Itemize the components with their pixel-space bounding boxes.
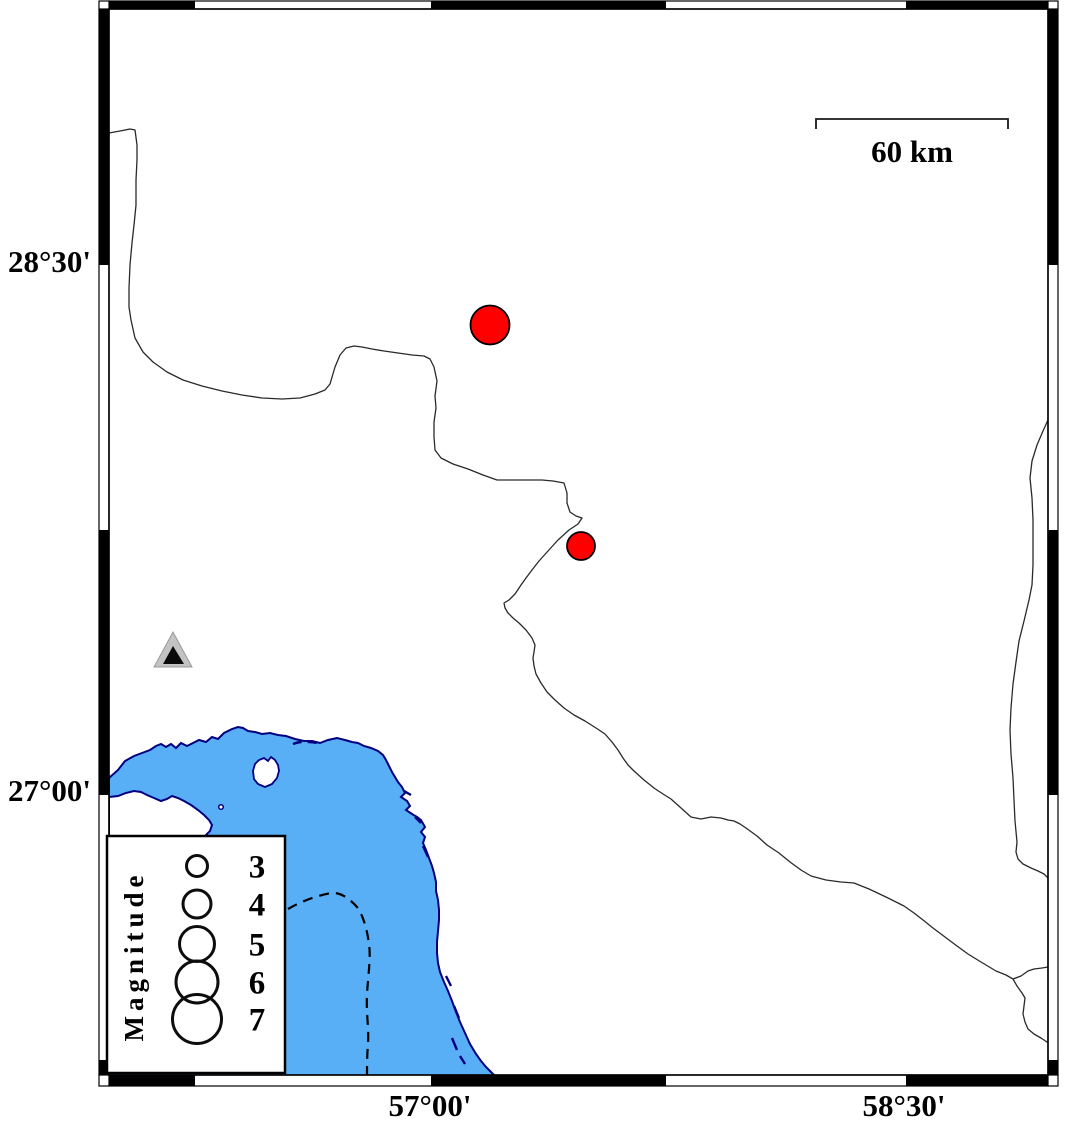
lon-label-58-30: 58°30' xyxy=(862,1088,945,1122)
legend-label-m7: 7 xyxy=(249,1003,266,1039)
lon-label-57-00: 57°00' xyxy=(388,1088,471,1122)
magnitude-legend: Magnitude 34567 xyxy=(107,836,285,1073)
legend-label-m6: 6 xyxy=(249,966,266,1002)
lat-label-27-00: 27°00' xyxy=(8,773,91,808)
legend-label-m4: 4 xyxy=(249,888,266,924)
map-figure: 60 km xyxy=(0,0,1066,1122)
earthquake-marker-1 xyxy=(471,306,510,345)
frame-corner-topleft xyxy=(99,1,109,9)
scale-bar-label: 60 km xyxy=(871,134,953,169)
earthquake-marker-2 xyxy=(567,532,595,560)
map-canvas: 60 km xyxy=(0,0,1066,1122)
legend-title: Magnitude xyxy=(119,870,149,1041)
frame-corner-bottomleft xyxy=(99,1075,109,1086)
islet-dot xyxy=(219,805,224,810)
legend-label-m5: 5 xyxy=(249,928,266,964)
lat-label-28-30: 28°30' xyxy=(8,244,91,279)
frame-corner-bottomright xyxy=(1048,1075,1058,1086)
legend-label-m3: 3 xyxy=(249,850,266,886)
frame-corner-topright xyxy=(1048,1,1058,9)
